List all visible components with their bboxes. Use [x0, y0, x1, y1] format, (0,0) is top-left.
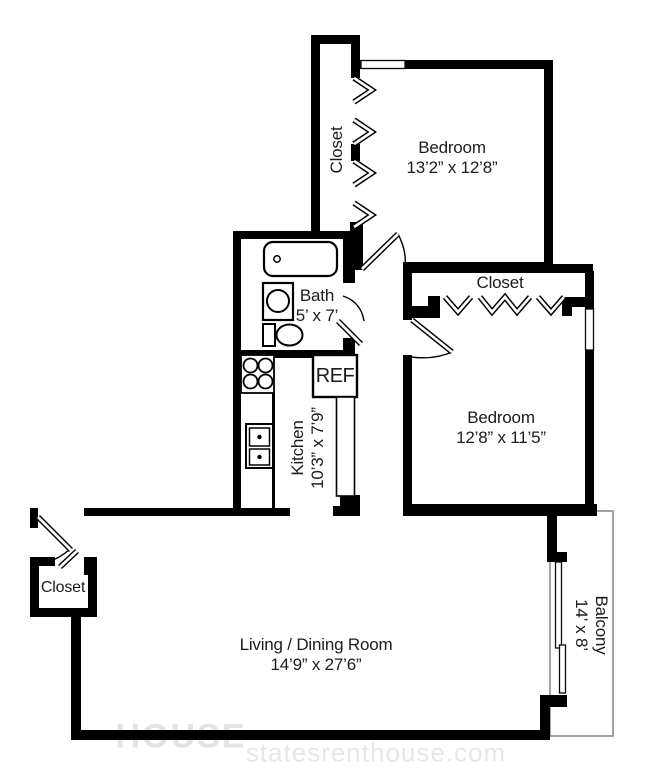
- bathroom-sink-basin: [267, 290, 289, 312]
- window: [361, 61, 405, 69]
- bath-dims: 5’ x 7’: [296, 306, 338, 326]
- watermark-site: statesrenthouse.com: [246, 738, 506, 769]
- closet-top-label: Closet: [327, 127, 347, 174]
- balcony-label: Balcony 14’ x 8’: [571, 595, 611, 654]
- closet-door-chevrons: [354, 78, 564, 312]
- closet-mid-label: Closet: [477, 273, 524, 293]
- living-dining-name: Living / Dining Room: [240, 635, 393, 655]
- door-arc: [411, 352, 452, 358]
- floorplan: HOUSE: [0, 0, 650, 776]
- living-dining-label: Living / Dining Room 14’9” x 27’6”: [240, 635, 393, 675]
- sliding-door-panel: [560, 645, 566, 693]
- living-dining-dims: 14’9” x 27’6”: [240, 655, 393, 675]
- sink-drain: [257, 455, 261, 459]
- door-swings: [38, 234, 452, 567]
- closet-entry-label: Closet: [41, 578, 85, 598]
- balcony-name: Balcony: [591, 595, 611, 654]
- stove-burner: [244, 359, 258, 373]
- bedroom-1-dims: 13’2” x 12’8”: [407, 158, 498, 178]
- stove-burner: [259, 375, 273, 389]
- kitchen-label: Kitchen 10’3” x 7’9”: [288, 407, 328, 489]
- kitchen-dims: 10’3” x 7’9”: [308, 407, 328, 489]
- bath-label: Bath 5’ x 7’: [296, 286, 338, 326]
- bedroom-2-name: Bedroom: [456, 408, 546, 428]
- bedroom-2-label: Bedroom 12’8” x 11’5”: [456, 408, 546, 448]
- sink-drain: [257, 435, 261, 439]
- bath-name: Bath: [296, 286, 338, 306]
- refrigerator-label: REF: [316, 366, 355, 386]
- bathtub-faucet: [274, 256, 280, 262]
- stove-burner: [259, 359, 273, 373]
- door-arc: [343, 296, 364, 321]
- bedroom-2-dims: 12’8” x 11’5”: [456, 428, 546, 448]
- toilet-tank: [263, 324, 275, 346]
- kitchen-name: Kitchen: [288, 407, 308, 489]
- kitchen-counter: [337, 397, 355, 496]
- bedroom-1-label: Bedroom 13’2” x 12’8”: [407, 138, 498, 178]
- window: [586, 309, 594, 350]
- sliding-door-panel: [556, 562, 562, 648]
- toilet-bowl: [277, 325, 303, 346]
- balcony-dims: 14’ x 8’: [571, 595, 591, 654]
- bedroom-1-name: Bedroom: [407, 138, 498, 158]
- stove-burner: [244, 375, 258, 389]
